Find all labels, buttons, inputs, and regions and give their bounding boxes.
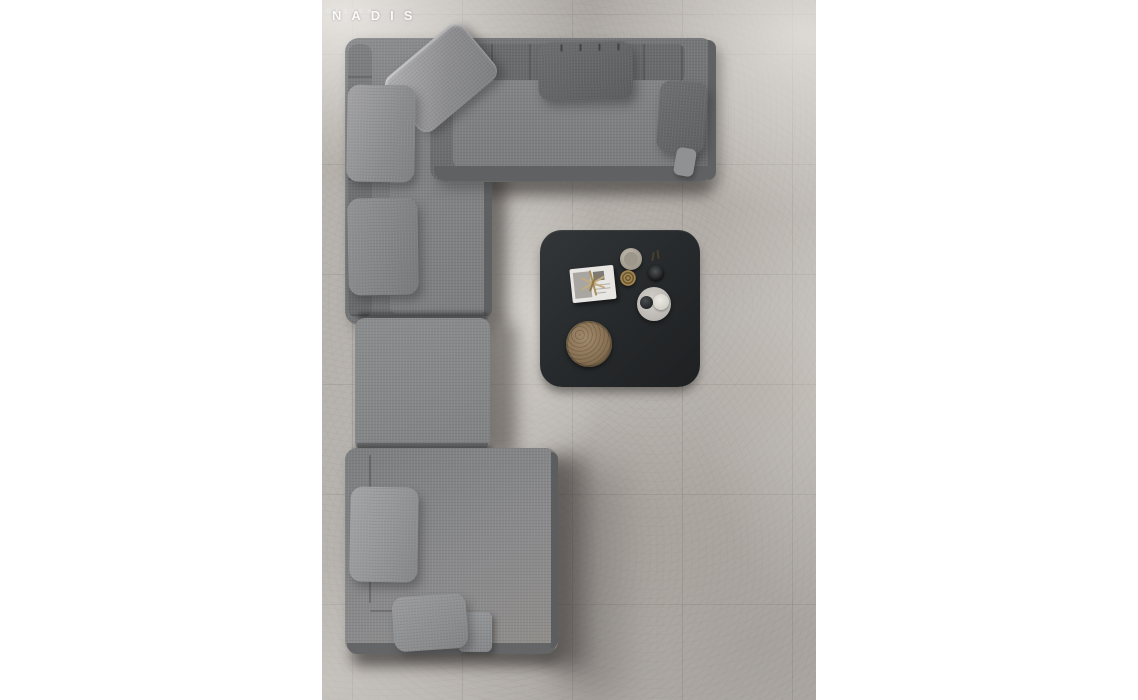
shadow-ottoman — [490, 322, 516, 456]
dark-bowl — [640, 296, 653, 309]
throw-pillow-bottom-arm — [349, 486, 419, 582]
bronze-tray — [566, 321, 612, 367]
sofa-ottoman — [355, 318, 490, 452]
shadow-bottom-section-right-soft — [562, 465, 622, 700]
black-cup — [648, 265, 664, 281]
brand-subtitle: DESIGN — [322, 9, 376, 15]
throw-pillow-top-dark — [538, 41, 634, 101]
throw-pillow-bottom — [391, 592, 469, 652]
throw-pillow-left-lower — [347, 197, 419, 295]
throw-pillow-left-upper — [346, 84, 416, 182]
cream-bowl — [653, 294, 669, 310]
sofa-bottom-right-edge — [551, 452, 558, 648]
throw-pillow-right-arm — [656, 79, 709, 154]
ceramic-cup — [620, 248, 642, 270]
product-photo: NADIS DESIGN — [322, 0, 816, 700]
serving-plate — [637, 287, 671, 321]
pillow-tufts — [544, 43, 627, 51]
sofa-top-front-edge — [434, 166, 712, 181]
sofa-top-right-arm-edge — [708, 40, 716, 180]
wire-sculpture — [578, 271, 608, 295]
ceramic-cup-inner — [624, 252, 638, 266]
page: NADIS DESIGN — [0, 0, 1138, 700]
brass-bowl — [620, 270, 636, 286]
